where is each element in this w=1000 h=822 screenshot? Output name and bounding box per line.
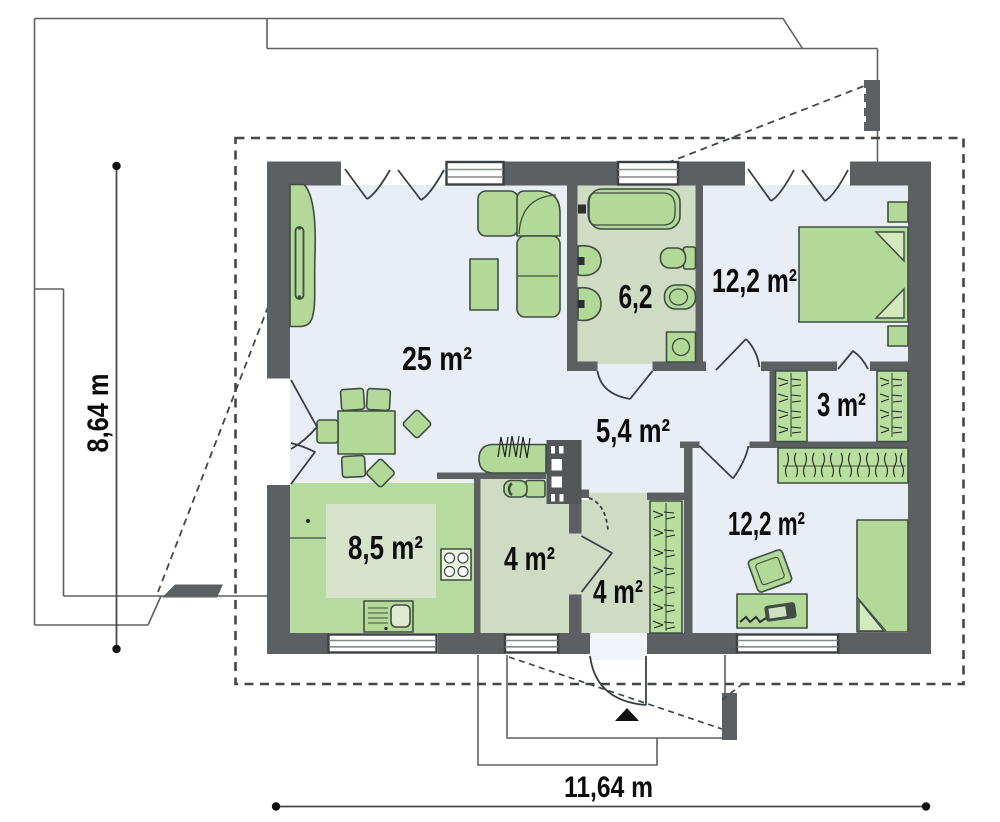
svg-text:8,64 m: 8,64 m xyxy=(82,374,115,453)
svg-text:5,4 m²: 5,4 m² xyxy=(596,412,670,449)
svg-text:3 m²: 3 m² xyxy=(817,386,866,423)
svg-text:12,2 m²: 12,2 m² xyxy=(712,262,797,299)
svg-text:8,5 m²: 8,5 m² xyxy=(348,529,423,566)
svg-text:12,2 m²: 12,2 m² xyxy=(728,505,805,542)
svg-text:6,2: 6,2 xyxy=(619,278,653,315)
svg-text:11,64 m: 11,64 m xyxy=(564,771,653,804)
svg-text:4 m²: 4 m² xyxy=(504,540,555,577)
svg-text:4 m²: 4 m² xyxy=(593,573,643,610)
svg-text:25 m²: 25 m² xyxy=(402,340,472,377)
